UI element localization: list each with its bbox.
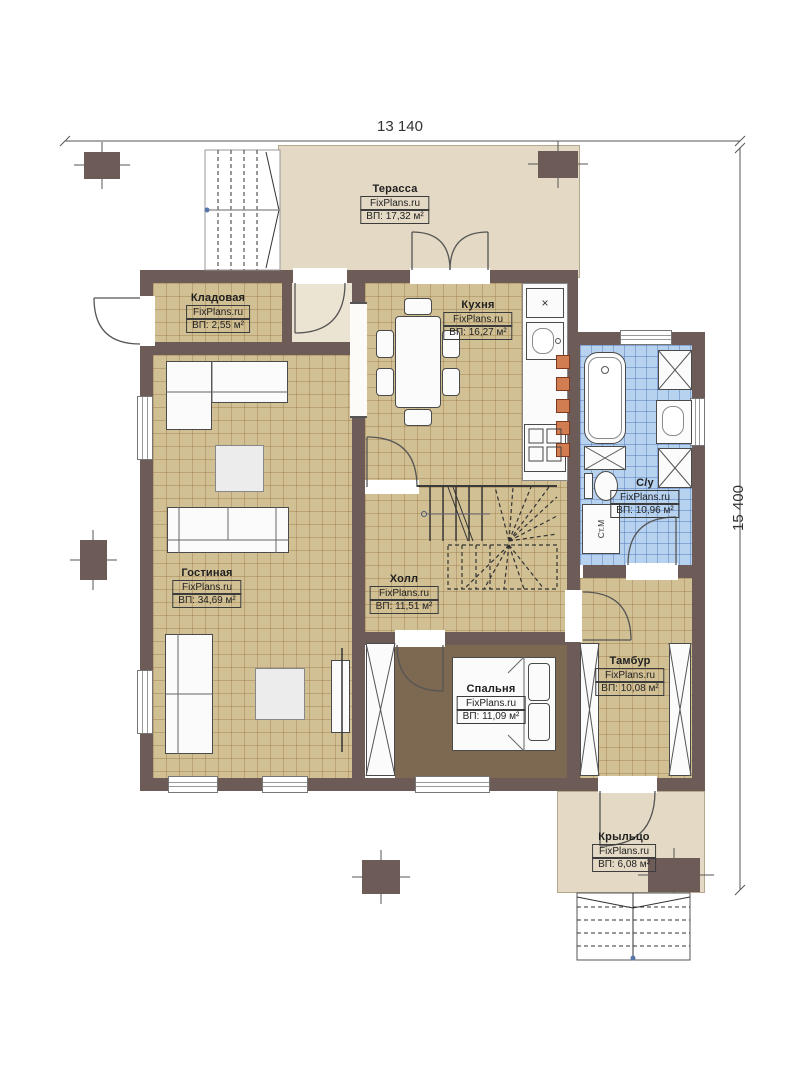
side-sofa (165, 634, 213, 754)
pillow (528, 663, 550, 701)
room-label-terrace: Терасса FixPlans.ru ВП: 17,32 м² (360, 183, 429, 224)
room-label-living: Гостиная FixPlans.ru ВП: 34,69 м² (172, 567, 241, 608)
washbasin (662, 406, 684, 436)
flue-block (556, 399, 570, 413)
flue-block (556, 443, 570, 457)
window (620, 330, 672, 345)
flue-block (556, 377, 570, 391)
door-opening-side-exit (138, 296, 155, 346)
tv-unit (331, 660, 350, 733)
chair (442, 368, 460, 396)
wardrobe (366, 643, 395, 776)
door-opening-entrance (598, 776, 657, 793)
floor-plan: × Ст.М (0, 0, 792, 1080)
door-opening-corridor (293, 268, 347, 284)
sofa (167, 507, 289, 553)
window (415, 776, 490, 793)
chair (404, 298, 432, 315)
dimension-height: 15 400 (730, 480, 746, 536)
porch-steps (577, 893, 690, 961)
pillow (528, 703, 550, 741)
vent-symbol: × (526, 288, 564, 318)
room-label-bathroom: С/у FixPlans.ru ВП: 10,96 м² (610, 477, 679, 518)
chair (404, 409, 432, 426)
room-label-bedroom: Спальня FixPlans.ru ВП: 11,09 м² (457, 683, 526, 724)
door-opening-kitchen-hall (365, 480, 419, 494)
dining-table (395, 316, 441, 408)
dimension-width: 13 140 (352, 118, 448, 135)
window (690, 398, 705, 446)
toilet-tank (584, 473, 593, 499)
room-label-kitchen: Кухня FixPlans.ru ВП: 16,27 м² (443, 299, 512, 340)
passage-living-kitchen (350, 302, 367, 418)
wardrobe (669, 643, 691, 776)
window (262, 776, 308, 793)
coffee-table (215, 445, 264, 492)
door-opening-terrace (410, 268, 490, 284)
chair (376, 330, 394, 358)
flue-block (556, 355, 570, 369)
terrace-stairs (205, 150, 281, 270)
door-opening-tambour-hall (565, 590, 582, 642)
room-label-porch: Крыльцо FixPlans.ru ВП: 6,08 м² (592, 831, 656, 872)
room-label-storage: Кладовая FixPlans.ru ВП: 2,55 м² (186, 292, 250, 333)
bathtub-inner (588, 357, 622, 439)
door-opening-bathroom (626, 563, 678, 580)
sink-basin (532, 328, 554, 354)
square-table (255, 668, 305, 720)
corner-sofa-chaise (166, 361, 212, 430)
flue-block (556, 421, 570, 435)
room-label-tambour: Тамбур FixPlans.ru ВП: 10,08 м² (595, 655, 664, 696)
chair (376, 368, 394, 396)
window (137, 670, 153, 734)
bath-cabinet (658, 350, 692, 390)
wall-storage-bottom (140, 342, 362, 355)
room-label-hall: Холл FixPlans.ru ВП: 11,51 м² (370, 573, 439, 614)
door-opening-bedroom (395, 630, 445, 647)
window (168, 776, 218, 793)
bath-shelf (584, 446, 626, 470)
window (137, 396, 153, 460)
